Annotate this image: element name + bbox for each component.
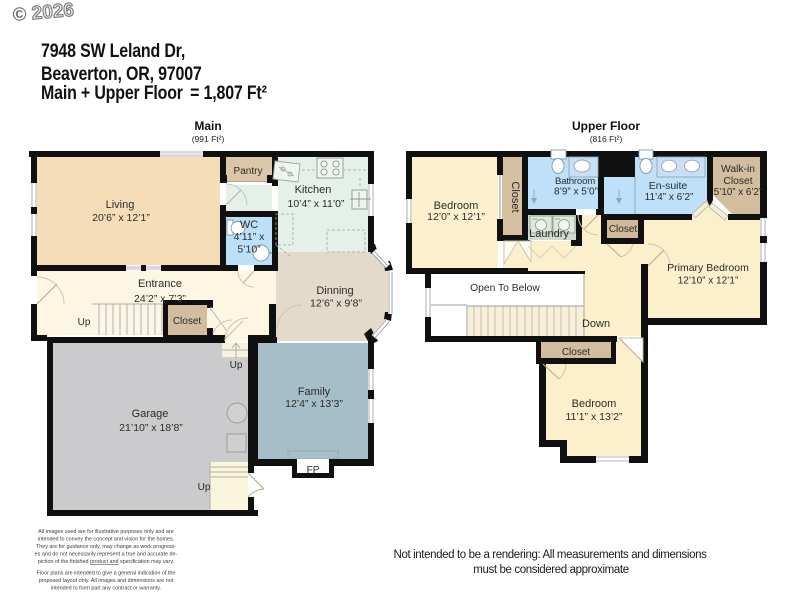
svg-text:7948 SW Leland Dr,: 7948 SW Leland Dr, bbox=[41, 40, 185, 62]
svg-text:Up: Up bbox=[230, 360, 243, 371]
svg-text:proposed layout only. All imag: proposed layout only. All images and dim… bbox=[39, 578, 174, 584]
svg-text:Entrance: Entrance bbox=[138, 278, 182, 290]
svg-text:Garage: Garage bbox=[132, 408, 169, 420]
svg-text:must be considered approximate: must be considered approximate bbox=[473, 564, 628, 576]
svg-text:5’10” x 6’2”: 5’10” x 6’2” bbox=[714, 187, 762, 198]
svg-text:Bathroom: Bathroom bbox=[555, 176, 595, 187]
svg-text:Family: Family bbox=[298, 386, 331, 398]
svg-text:24’2” x 7’3”: 24’2” x 7’3” bbox=[134, 293, 186, 305]
svg-text:Bedroom: Bedroom bbox=[572, 398, 617, 410]
svg-text:Walk-in: Walk-in bbox=[721, 164, 755, 175]
svg-text:10’4” x 11’0”: 10’4” x 11’0” bbox=[287, 198, 345, 210]
svg-text:Floor plans are intended to gi: Floor plans are intended to give a gener… bbox=[37, 571, 176, 577]
svg-text:11’1” x 13’2”: 11’1” x 13’2” bbox=[565, 411, 623, 423]
svg-text:5’10”: 5’10” bbox=[237, 244, 261, 256]
svg-text:11’4” x 6’2”: 11’4” x 6’2” bbox=[645, 192, 694, 203]
svg-text:es and do not necessarily repr: es and do not necessarily represent a tr… bbox=[35, 552, 178, 558]
svg-text:Kitchen: Kitchen bbox=[295, 184, 332, 196]
svg-text:Open To Below: Open To Below bbox=[470, 283, 540, 294]
svg-text:All images used are for illust: All images used are for illustrative pur… bbox=[38, 529, 173, 535]
svg-text:WC: WC bbox=[240, 219, 258, 231]
svg-text:12’4” x 13’3”: 12’4” x 13’3” bbox=[285, 398, 343, 410]
svg-text:20’6” x 12’1”: 20’6” x 12’1” bbox=[92, 212, 150, 224]
svg-text:Main: Main bbox=[194, 119, 221, 133]
svg-text:12’10” x 12’1”: 12’10” x 12’1” bbox=[678, 276, 739, 287]
svg-text:Main + Upper Floor = 1,807 Ft: Main + Upper Floor = 1,807 Ft² bbox=[41, 82, 267, 104]
svg-text:(991 Ft²): (991 Ft²) bbox=[192, 134, 225, 144]
svg-text:Living: Living bbox=[106, 199, 135, 211]
svg-text:FP: FP bbox=[307, 465, 320, 476]
svg-text:21’10” x 18’8”: 21’10” x 18’8” bbox=[119, 422, 183, 434]
svg-text:Not intended to be a rendering: Not intended to be a rendering: All meas… bbox=[394, 549, 708, 561]
svg-text:Up: Up bbox=[198, 482, 211, 493]
svg-text:They are for guidance only, ma: They are for guidance only, may change a… bbox=[36, 544, 176, 550]
svg-text:intended to convey the concept: intended to convey the concept and visio… bbox=[38, 537, 174, 543]
svg-text:piction of the finished produc: piction of the finished product and spec… bbox=[38, 559, 174, 565]
svg-text:Down: Down bbox=[582, 318, 610, 330]
svg-text:Pantry: Pantry bbox=[234, 166, 263, 177]
svg-text:Primary Bedroom: Primary Bedroom bbox=[667, 262, 749, 274]
svg-text:Closet: Closet bbox=[509, 181, 521, 212]
svg-text:Closet: Closet bbox=[173, 316, 202, 327]
svg-text:4’11” x: 4’11” x bbox=[234, 231, 265, 243]
svg-text:Dinning: Dinning bbox=[316, 285, 353, 297]
svg-text:12’0” x 12’1”: 12’0” x 12’1” bbox=[427, 211, 485, 223]
svg-text:Closet: Closet bbox=[723, 176, 752, 187]
svg-text:Closet: Closet bbox=[562, 347, 591, 358]
svg-text:Closet: Closet bbox=[609, 224, 638, 235]
svg-text:Upper Floor: Upper Floor bbox=[572, 119, 640, 133]
svg-text:Laundry: Laundry bbox=[529, 228, 569, 240]
svg-text:(816 Ft²): (816 Ft²) bbox=[590, 134, 623, 144]
svg-text:12’6” x 9’8”: 12’6” x 9’8” bbox=[310, 298, 362, 310]
svg-text:8’9” x 5’0”: 8’9” x 5’0” bbox=[554, 187, 598, 198]
svg-text:En-suite: En-suite bbox=[649, 180, 688, 192]
svg-text:intended to form part any cont: intended to form part any contract or wa… bbox=[51, 586, 161, 592]
svg-text:Up: Up bbox=[78, 317, 91, 328]
